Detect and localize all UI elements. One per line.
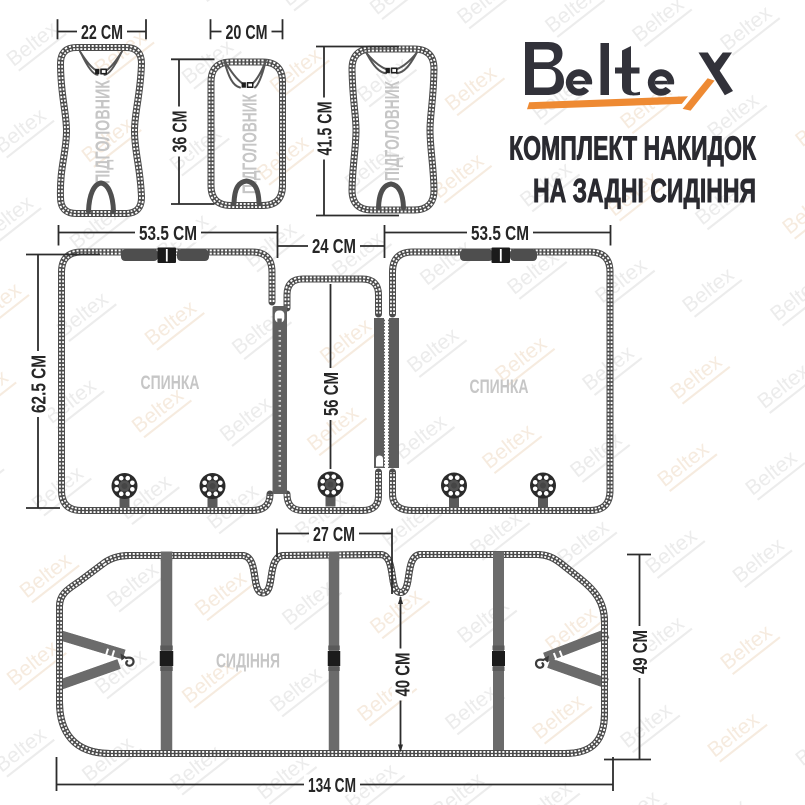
svg-text:НА ЗАДНІ СИДІННЯ: НА ЗАДНІ СИДІННЯ: [533, 172, 756, 209]
svg-text:24 CM: 24 CM: [312, 235, 356, 258]
svg-text:62.5 CM: 62.5 CM: [27, 355, 50, 413]
svg-text:53.5 CM: 53.5 CM: [139, 222, 197, 245]
svg-text:22 CM: 22 CM: [81, 21, 123, 44]
svg-text:КОМПЛЕКТ НАКИДОК: КОМПЛЕКТ НАКИДОК: [509, 130, 757, 167]
svg-text:41.5 CM: 41.5 CM: [313, 102, 336, 156]
svg-text:СПИНКА: СПИНКА: [470, 376, 529, 398]
svg-text:27 CM: 27 CM: [313, 523, 355, 546]
svg-text:49 CM: 49 CM: [629, 630, 652, 674]
svg-text:56 CM: 56 CM: [320, 372, 343, 416]
svg-text:СПИНКА: СПИНКА: [141, 372, 200, 394]
svg-text:ПІДГОЛОВНИК: ПІДГОЛОВНИК: [91, 80, 114, 184]
svg-text:ПІДГОЛОВНИК: ПІДГОЛОВНИК: [381, 81, 404, 181]
svg-text:40 CM: 40 CM: [391, 653, 414, 697]
svg-text:20 CM: 20 CM: [226, 21, 268, 44]
svg-text:36 CM: 36 CM: [168, 111, 191, 153]
svg-text:53.5 CM: 53.5 CM: [471, 222, 529, 245]
svg-text:ПІДГОЛОВНИК: ПІДГОЛОВНИК: [238, 94, 261, 194]
svg-text:СИДІННЯ: СИДІННЯ: [216, 651, 280, 673]
svg-text:134 CM: 134 CM: [308, 774, 356, 797]
